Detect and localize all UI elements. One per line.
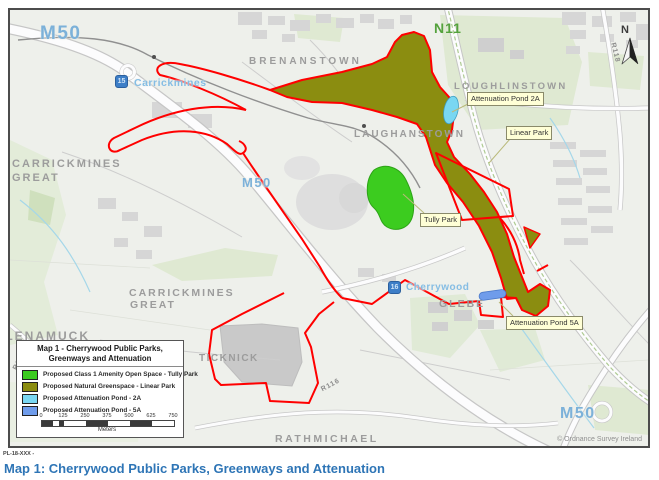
road-label-m50-southeast: M50	[560, 406, 596, 422]
place-label-glebe: GLEBE	[439, 299, 485, 310]
callout-attenuation-pond-5a: Attenuation Pond 5A	[506, 316, 583, 330]
scale-unit-label: Meters	[41, 427, 173, 433]
legend-item-linear-park: Proposed Natural Greenspace - Linear Par…	[22, 382, 179, 391]
place-label-laughanstown: LAUGHANSTOWN	[354, 130, 465, 140]
figure-caption: Map 1: Cherrywood Public Parks, Greenway…	[4, 461, 385, 476]
place-label-carrickmines-great-lower-2: GREAT	[130, 300, 176, 311]
map-frame: M50 M50 M50 N11 BRENANSTOWN LOUGHLINSTOW…	[8, 8, 650, 448]
legend: Map 1 - Cherrywood Public Parks, Greenwa…	[16, 340, 184, 438]
place-label-carrickmines-great-lower-1: CARRICKMINES	[129, 288, 235, 299]
legend-item-tully-park: Proposed Class 1 Amenity Open Space - Tu…	[22, 370, 179, 379]
place-label-carrickmines-great-upper-1: CARRICKMINES	[12, 159, 122, 170]
place-label-ticknick: TICKNICK	[199, 354, 259, 364]
junction-16-icon: 16	[388, 281, 401, 294]
map-document-page: M50 M50 M50 N11 BRENANSTOWN LOUGHLINSTOW…	[0, 0, 659, 480]
place-label-carrickmines-great-upper-2: GREAT	[12, 173, 60, 184]
copyright-notice: © Ordnance Survey Ireland	[557, 436, 642, 443]
legend-title: Map 1 - Cherrywood Public Parks, Greenwa…	[17, 341, 183, 367]
luas-stop	[152, 55, 156, 59]
junction-16-label: Cherrywood	[406, 283, 469, 293]
legend-swatch-amenity	[22, 370, 38, 380]
legend-swatch-greenspace	[22, 382, 38, 392]
place-label-loughlinstown: LOUGHLINSTOWN	[454, 82, 567, 92]
scale-bar: 0 125 250 375 500 625 750 Meters	[17, 413, 183, 435]
junction-15-label: Carrickmines	[134, 78, 207, 89]
north-arrow-label: N	[621, 24, 629, 36]
road-label-n11: N11	[434, 21, 462, 35]
legend-title-line1: Map 1 - Cherrywood Public Parks,	[19, 344, 181, 354]
map-canvas: M50 M50 M50 N11 BRENANSTOWN LOUGHLINSTOW…	[10, 10, 648, 446]
legend-title-line2: Greenways and Attenuation	[19, 354, 181, 364]
callout-tully-park: Tully Park	[420, 213, 461, 227]
junction-15-number: 15	[118, 78, 126, 85]
place-label-brenanstown: BRENANSTOWN	[249, 57, 362, 67]
legend-item-pond-2a: Proposed Attenuation Pond - 2A	[22, 394, 179, 403]
callout-attenuation-pond-2a: Attenuation Pond 2A	[467, 92, 544, 106]
scale-ticks: 0 125 250 375 500 625 750	[17, 413, 183, 419]
place-label-rathmichael: RATHMICHAEL	[275, 434, 379, 445]
junction-15-icon: 15	[115, 75, 128, 88]
scale-bar-segments	[41, 420, 175, 427]
callout-linear-park: Linear Park	[506, 126, 552, 140]
document-code: PL-18-XXX -	[3, 451, 34, 457]
junction-16-number: 16	[391, 284, 399, 291]
luas-stop	[362, 124, 366, 128]
legend-swatch-pond-2a	[22, 394, 38, 404]
road-label-m50-middle: M50	[242, 176, 272, 189]
road-label-m50-northwest: M50	[40, 24, 81, 43]
